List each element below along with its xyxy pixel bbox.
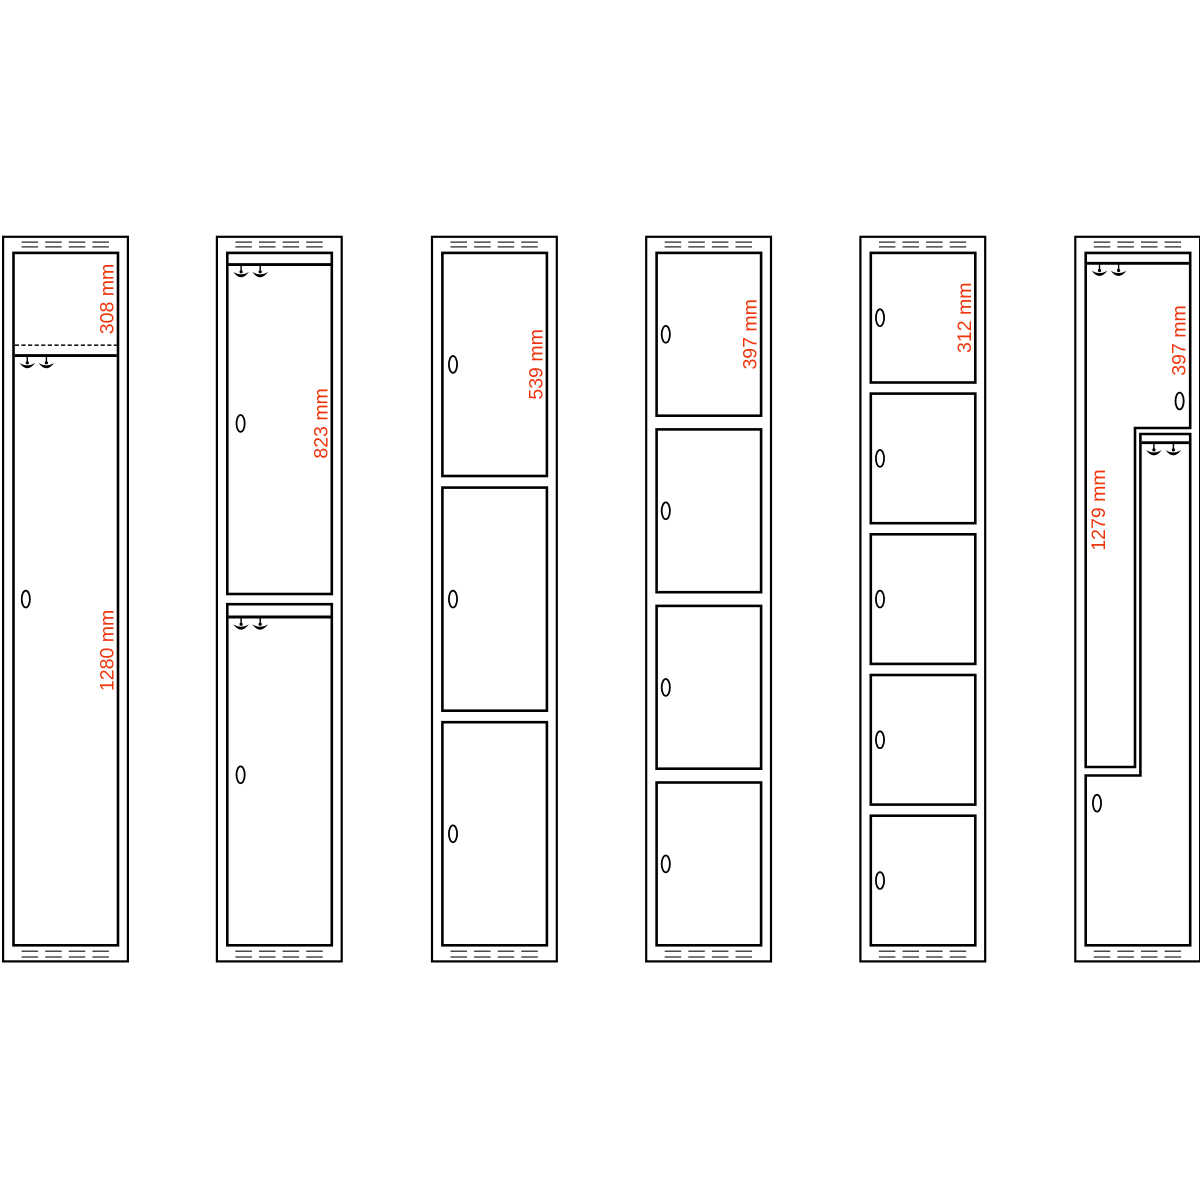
- svg-text:539 mm: 539 mm: [525, 329, 547, 399]
- svg-text:397 mm: 397 mm: [1169, 305, 1191, 375]
- svg-text:308 mm: 308 mm: [97, 264, 119, 334]
- svg-text:1279 mm: 1279 mm: [1088, 469, 1110, 550]
- svg-text:1280 mm: 1280 mm: [97, 610, 119, 691]
- svg-text:397 mm: 397 mm: [740, 299, 762, 369]
- svg-text:312 mm: 312 mm: [954, 282, 976, 352]
- svg-text:823 mm: 823 mm: [310, 388, 332, 458]
